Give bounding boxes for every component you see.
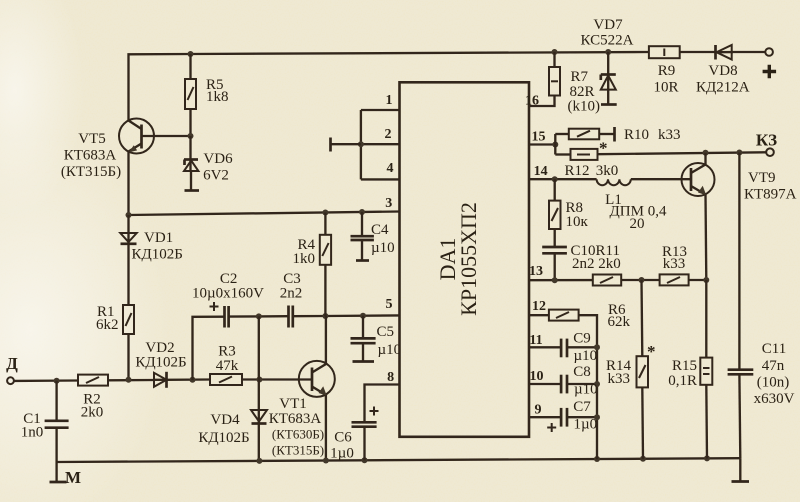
svg-text:(КТ315Б): (КТ315Б) [61, 164, 121, 180]
svg-text:10к: 10к [566, 214, 589, 230]
svg-text:VD7: VD7 [593, 17, 623, 33]
svg-text:C6: C6 [334, 430, 352, 446]
svg-text:k33: k33 [658, 127, 681, 143]
svg-text:13: 13 [529, 264, 543, 279]
svg-text:47k: 47k [216, 358, 239, 374]
svg-text:C7: C7 [573, 399, 591, 415]
svg-text:R12: R12 [564, 163, 589, 179]
svg-text:62k: 62k [608, 314, 631, 330]
svg-text:14: 14 [534, 164, 548, 179]
svg-text:2n2 2k0: 2n2 2k0 [572, 256, 621, 272]
svg-text:1: 1 [386, 93, 393, 108]
svg-text:10R: 10R [653, 80, 678, 96]
svg-text:k33: k33 [608, 371, 631, 387]
svg-text:6k2: 6k2 [96, 317, 119, 333]
svg-text:VD1: VD1 [144, 230, 173, 246]
svg-text:C11: C11 [762, 341, 786, 357]
svg-text:3: 3 [385, 196, 392, 211]
svg-text:R9: R9 [658, 63, 676, 79]
svg-text:VD6: VD6 [203, 151, 233, 167]
svg-text:8: 8 [387, 370, 394, 385]
svg-text:5: 5 [386, 297, 393, 312]
svg-text:C5: C5 [377, 324, 395, 340]
svg-text:1µ0: 1µ0 [330, 446, 354, 462]
svg-text:2k0: 2k0 [81, 405, 104, 421]
svg-text:0,1R: 0,1R [668, 373, 697, 389]
svg-text:4: 4 [387, 161, 394, 176]
svg-text:(КТ315Б): (КТ315Б) [272, 443, 324, 458]
svg-text:КС522А: КС522А [581, 33, 634, 49]
svg-text:3k0: 3k0 [596, 163, 619, 179]
svg-text:VT9: VT9 [748, 170, 776, 186]
svg-text:µ10: µ10 [574, 348, 598, 364]
svg-text:C9: C9 [573, 331, 591, 347]
svg-text:1k0: 1k0 [293, 251, 316, 267]
svg-text:C4: C4 [371, 222, 389, 238]
svg-text:10: 10 [530, 369, 544, 384]
svg-text:2n2: 2n2 [280, 286, 303, 302]
svg-text:x630V: x630V [754, 391, 795, 407]
svg-text:(КТ630Б): (КТ630Б) [272, 427, 324, 442]
svg-text:k33: k33 [663, 256, 686, 272]
svg-text:VD8: VD8 [708, 63, 737, 79]
svg-text:КД102Б: КД102Б [135, 355, 186, 371]
svg-text:µ10: µ10 [574, 382, 598, 398]
svg-text:R10: R10 [624, 127, 649, 143]
svg-text:КР1055ХП2: КР1055ХП2 [456, 202, 481, 316]
svg-text:КД102Б: КД102Б [198, 430, 249, 446]
svg-text:КЗ: КЗ [756, 131, 777, 150]
svg-text:47n: 47n [762, 358, 785, 374]
svg-text:1n0: 1n0 [21, 425, 44, 441]
svg-text:µ10: µ10 [371, 240, 395, 256]
svg-text:1µ0: 1µ0 [574, 417, 598, 433]
svg-text:*: * [647, 342, 656, 361]
svg-text:µ10: µ10 [378, 342, 402, 358]
svg-text:1k8: 1k8 [206, 89, 229, 105]
svg-text:R15: R15 [672, 358, 697, 374]
svg-text:VT1: VT1 [279, 396, 307, 412]
svg-text:R7: R7 [571, 69, 589, 85]
svg-text:6V2: 6V2 [203, 168, 229, 184]
svg-text:2: 2 [385, 127, 392, 142]
svg-text:КТ683А: КТ683А [64, 148, 117, 164]
svg-text:КД102Б: КД102Б [132, 247, 183, 263]
svg-text:9: 9 [535, 403, 542, 418]
svg-text:Д: Д [6, 354, 18, 373]
svg-text:VD4: VD4 [210, 412, 240, 428]
svg-text:11: 11 [529, 333, 542, 348]
svg-text:КД212А: КД212А [696, 80, 750, 96]
svg-text:15: 15 [532, 130, 546, 145]
svg-text:20: 20 [630, 216, 645, 232]
svg-text:(10n): (10n) [757, 375, 790, 391]
svg-text:C8: C8 [573, 364, 591, 380]
svg-text:М: М [65, 468, 81, 487]
svg-text:КТ683А: КТ683А [269, 411, 322, 427]
svg-text:VT5: VT5 [78, 131, 106, 147]
svg-text:12: 12 [532, 299, 546, 314]
svg-text:10µ0x160V: 10µ0x160V [192, 286, 264, 302]
svg-text:КТ897А: КТ897А [744, 187, 797, 203]
svg-text:(k10): (k10) [568, 99, 601, 115]
